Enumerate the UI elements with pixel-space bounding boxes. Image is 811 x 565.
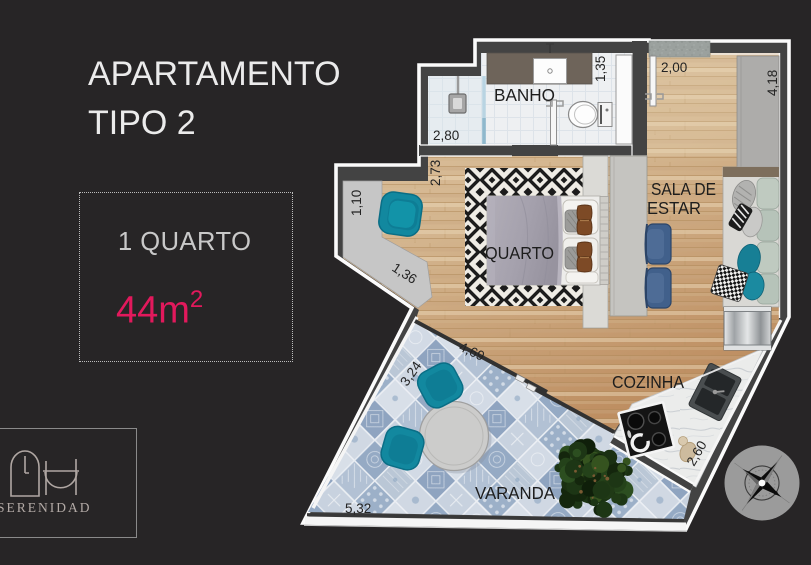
svg-text:COZINHA: COZINHA — [612, 372, 684, 392]
svg-text:4,18: 4,18 — [765, 70, 780, 96]
svg-text:QUARTO: QUARTO — [485, 243, 554, 263]
svg-text:ESTAR: ESTAR — [647, 198, 701, 218]
svg-text:1,10: 1,10 — [349, 190, 364, 216]
svg-text:2,73: 2,73 — [428, 160, 443, 186]
svg-text:2,80: 2,80 — [433, 128, 459, 143]
svg-text:1,35: 1,35 — [593, 56, 608, 82]
svg-text:BANHO: BANHO — [494, 85, 555, 105]
svg-text:SALA DE: SALA DE — [651, 179, 716, 199]
svg-text:VARANDA: VARANDA — [475, 483, 555, 503]
svg-text:2,00: 2,00 — [661, 60, 687, 75]
svg-text:5,32: 5,32 — [345, 501, 371, 516]
